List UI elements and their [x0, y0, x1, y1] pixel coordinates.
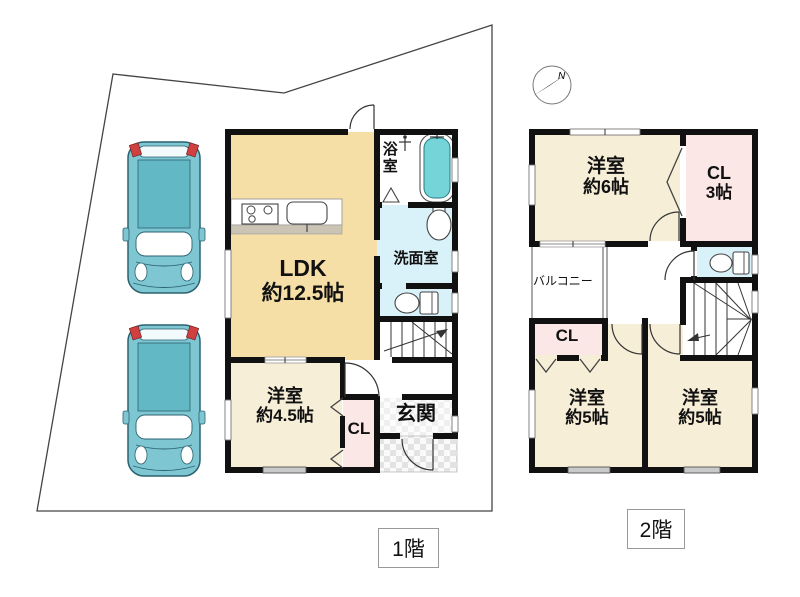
ldk-label: LDK 約12.5帖: [228, 256, 378, 305]
west45-label: 洋室 約4.5帖: [228, 386, 342, 425]
west6-label: 洋室 約6帖: [532, 156, 680, 197]
window: [452, 158, 458, 182]
closet2f-label: CL: [530, 326, 604, 345]
closet1f-label: CL: [341, 419, 377, 438]
room-ldk: [228, 132, 377, 360]
window: [452, 293, 458, 313]
car-bottom: [123, 325, 205, 476]
window: [568, 467, 610, 473]
washroom-label: 洗面室: [377, 251, 455, 268]
kitchen-counter-icon: [231, 199, 342, 234]
window: [570, 129, 640, 135]
door-toilet-2f: [665, 251, 694, 280]
floorplan-page: N: [0, 0, 800, 597]
floor2-tag: 2階: [627, 509, 685, 549]
door-hall-ldk: [345, 363, 379, 397]
bath-label: 浴室: [380, 141, 397, 175]
compass-north-label: N: [558, 71, 566, 82]
closet3-label: CL 3帖: [686, 163, 752, 202]
bathtub-icon: [420, 133, 454, 202]
window: [752, 388, 758, 414]
west5l-label: 洋室 約5帖: [532, 388, 642, 427]
balcony-label: バルコニー: [533, 275, 613, 288]
sliding-opening: [265, 357, 306, 363]
compass-icon: N: [533, 66, 571, 104]
entrance-label: 玄関: [377, 403, 455, 425]
balcony-sliding-window: [540, 241, 605, 247]
window: [752, 255, 758, 274]
window: [684, 467, 720, 473]
car-top: [123, 142, 205, 293]
window: [752, 291, 758, 313]
floor1-tag: 1階: [378, 528, 439, 568]
stairs-1f: [384, 322, 452, 357]
door-back: [350, 105, 374, 129]
stove-icon: [242, 204, 278, 224]
sink-icon: [287, 202, 327, 224]
floorplan-canvas: N: [0, 0, 800, 597]
window: [263, 467, 306, 473]
west5r-label: 洋室 約5帖: [648, 388, 752, 427]
